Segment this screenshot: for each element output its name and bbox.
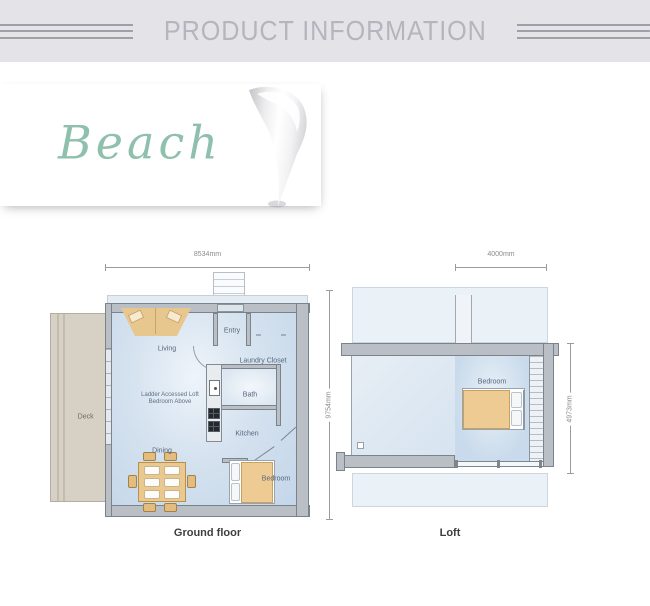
ground-height-dimension: 9754mm (322, 290, 338, 520)
loft-open-area (351, 356, 455, 459)
sofa-seam (155, 308, 156, 334)
faucet-dot (214, 387, 217, 390)
bath-floor-surface (223, 368, 279, 406)
room-label-laundry: Laundry Closet (239, 358, 286, 365)
window (106, 348, 111, 445)
dimension-tick (326, 290, 333, 291)
plate (164, 466, 180, 475)
pillow (231, 463, 240, 481)
roof-outline-bottom (352, 473, 548, 507)
ground-floor-caption: Ground floor (105, 527, 310, 539)
brand-name: Beach (58, 115, 222, 169)
ground-width-dimension: 8534mm (105, 256, 310, 272)
wall (296, 303, 309, 517)
room-label-living: Living (158, 346, 176, 353)
railing-post (455, 460, 458, 468)
header-rule-right (517, 24, 650, 39)
product-sheet: PRODUCT INFORMATION Beach 8534mm (0, 0, 650, 606)
dimension-label: 4973mm (567, 392, 574, 425)
dimension-line (105, 267, 310, 268)
ground-floor-plan: Living Entry Laundry Closet Bath Kitchen… (105, 280, 310, 520)
brand-band: Beach (0, 84, 321, 206)
pillow (231, 483, 240, 501)
room-label-kitchen: Kitchen (235, 431, 258, 438)
railing-post (539, 460, 542, 468)
plate (164, 490, 180, 499)
wall (341, 455, 455, 468)
dining-table (138, 462, 186, 502)
dimension-tick (567, 473, 574, 474)
page-title: PRODUCT INFORMATION (164, 15, 487, 47)
plate (144, 478, 160, 487)
wall (219, 405, 281, 410)
deck-label: Deck (78, 413, 94, 420)
loft-ladder (529, 356, 543, 461)
shelf-mark (281, 334, 286, 336)
entry-door (217, 304, 244, 312)
dimension-label: 8534mm (191, 251, 224, 258)
chimney-notch (455, 295, 472, 344)
skylight (357, 442, 364, 449)
loft-height-dimension: 4973mm (563, 343, 579, 474)
header-banner: PRODUCT INFORMATION (0, 0, 650, 62)
wall (219, 364, 281, 369)
note-line: Ladder Accessed Loft (141, 392, 199, 398)
loft-access-note: Ladder Accessed Loft Bedroom Above (141, 392, 199, 406)
room-label-loft-bedroom: Bedroom (478, 379, 506, 386)
room-label-bedroom: Bedroom (262, 476, 290, 483)
pillow (511, 410, 522, 426)
plate (144, 490, 160, 499)
dimension-label: 9754mm (326, 388, 333, 421)
headboard (523, 390, 525, 430)
dimension-tick (326, 519, 333, 520)
blanket (463, 390, 510, 429)
header-rule-left (0, 24, 133, 39)
dimension-tick (309, 264, 310, 271)
dimension-tick (455, 264, 456, 271)
dimension-tick (105, 264, 106, 271)
kitchen-sink (209, 380, 220, 396)
wall (213, 313, 218, 346)
railing-post (497, 460, 500, 468)
loft-caption: Loft (345, 527, 555, 539)
deck-plank-line (63, 314, 65, 501)
room-label-bath: Bath (243, 392, 257, 399)
wall (341, 343, 559, 356)
stove-burner (208, 421, 220, 432)
dimension-tick (546, 264, 547, 271)
room-label-dining: Dining (152, 448, 172, 455)
note-line: Bedroom Above (149, 399, 192, 405)
plate (144, 466, 160, 475)
dimension-tick (567, 343, 574, 344)
bed (462, 388, 525, 430)
roof-outline-top (352, 287, 548, 343)
dimension-line (455, 267, 547, 268)
deck-area: Deck (50, 313, 107, 502)
loft-width-dimension: 4000mm (455, 256, 547, 272)
blanket (241, 462, 273, 503)
wall (336, 452, 345, 471)
deck-plank-line (57, 314, 59, 501)
plate (164, 478, 180, 487)
chair (143, 503, 156, 512)
pillow (511, 392, 522, 408)
chair (187, 475, 196, 488)
shelf-mark (256, 334, 261, 336)
stove-burner (208, 408, 220, 419)
wall (246, 313, 251, 346)
page-curl-icon (237, 86, 322, 208)
room-label-entry: Entry (224, 328, 240, 335)
dimension-label: 4000mm (484, 251, 517, 258)
loft-plan: Bedroom (345, 285, 555, 510)
wall (105, 505, 310, 517)
wall (543, 343, 554, 467)
chair (128, 475, 137, 488)
chair (164, 503, 177, 512)
loft-railing (455, 461, 543, 467)
wall (276, 364, 281, 426)
